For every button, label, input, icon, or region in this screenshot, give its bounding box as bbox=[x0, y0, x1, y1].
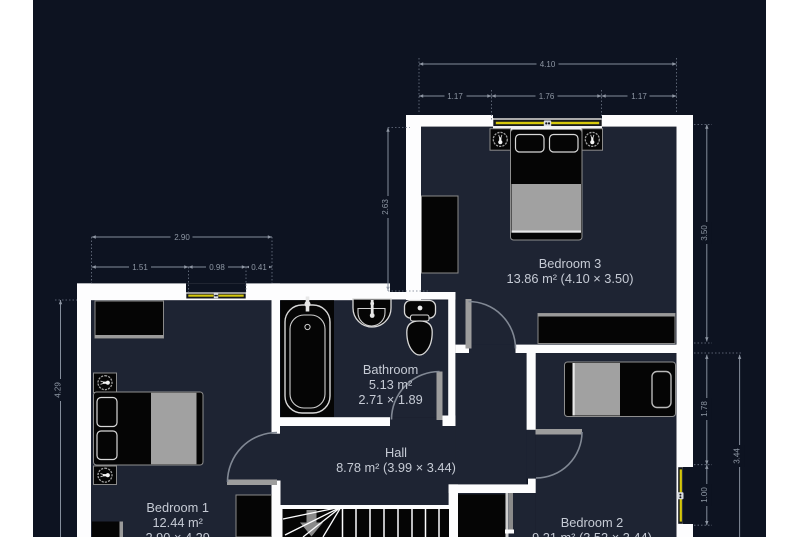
svg-text:0.41: 0.41 bbox=[251, 263, 267, 272]
svg-text:0.98: 0.98 bbox=[209, 263, 225, 272]
svg-text:1.17: 1.17 bbox=[447, 92, 463, 101]
svg-text:2.71 × 1.89: 2.71 × 1.89 bbox=[358, 392, 422, 407]
svg-text:Bathroom: Bathroom bbox=[363, 362, 418, 377]
svg-text:12.44 m²: 12.44 m² bbox=[152, 515, 203, 530]
svg-text:1.17: 1.17 bbox=[631, 92, 647, 101]
svg-text:Bedroom 1: Bedroom 1 bbox=[146, 500, 209, 515]
svg-text:1.00: 1.00 bbox=[700, 487, 709, 503]
svg-text:Bedroom 2: Bedroom 2 bbox=[561, 515, 624, 530]
svg-text:1.51: 1.51 bbox=[132, 263, 148, 272]
svg-text:1.76: 1.76 bbox=[539, 92, 555, 101]
svg-text:2.90: 2.90 bbox=[174, 233, 190, 242]
svg-text:3.44: 3.44 bbox=[733, 448, 742, 464]
svg-text:3.50: 3.50 bbox=[700, 225, 709, 241]
svg-text:2.90 × 4.29: 2.90 × 4.29 bbox=[145, 530, 209, 537]
svg-text:Bedroom 3: Bedroom 3 bbox=[539, 256, 602, 271]
svg-text:Hall: Hall bbox=[385, 445, 407, 460]
svg-text:13.86 m² (4.10 × 3.50): 13.86 m² (4.10 × 3.50) bbox=[507, 271, 634, 286]
svg-text:2.63: 2.63 bbox=[381, 199, 390, 215]
svg-text:4.10: 4.10 bbox=[540, 60, 556, 69]
svg-text:8.78 m² (3.99 × 3.44): 8.78 m² (3.99 × 3.44) bbox=[336, 460, 456, 475]
svg-text:1.78: 1.78 bbox=[700, 401, 709, 417]
svg-text:9.21 m² (3.52 × 3.44): 9.21 m² (3.52 × 3.44) bbox=[532, 530, 652, 537]
svg-text:4.29: 4.29 bbox=[54, 382, 63, 398]
svg-text:5.13 m²: 5.13 m² bbox=[369, 377, 413, 392]
